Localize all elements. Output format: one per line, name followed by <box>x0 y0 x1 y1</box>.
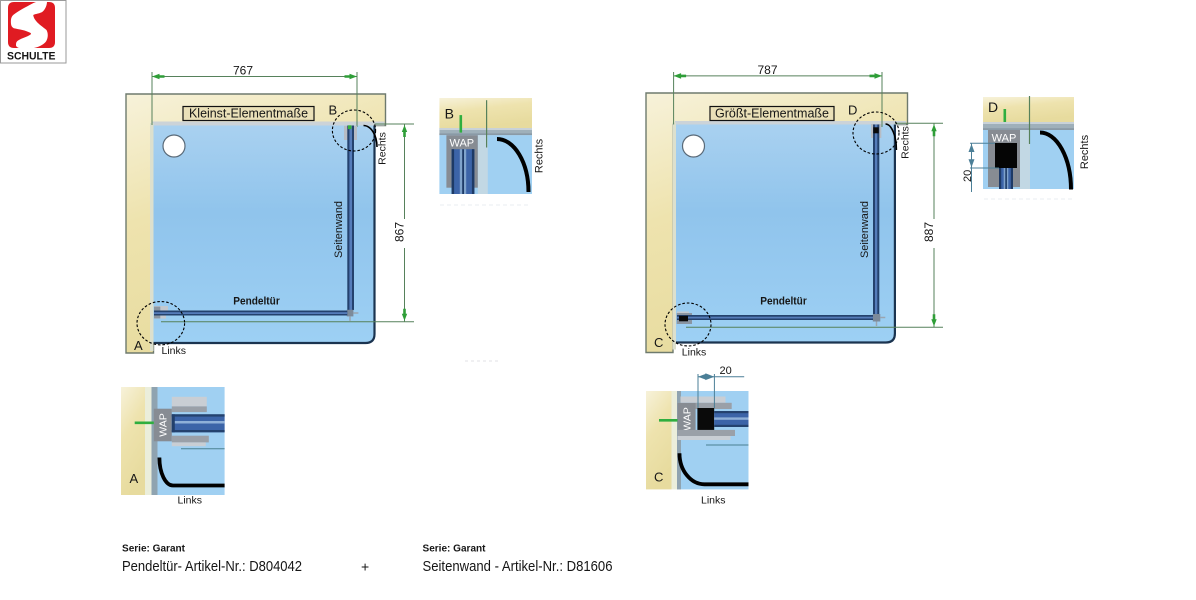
svg-text:Links: Links <box>701 495 726 507</box>
svg-text:Serie: Garant: Serie: Garant <box>122 543 185 555</box>
svg-text:+: + <box>361 559 369 575</box>
svg-text:20: 20 <box>720 365 732 377</box>
svg-text:Rechts: Rechts <box>900 126 912 159</box>
svg-text:A: A <box>134 338 143 353</box>
svg-text:Kleinst-Elementmaße: Kleinst-Elementmaße <box>189 107 308 121</box>
svg-text:867: 867 <box>393 222 407 242</box>
svg-text:B: B <box>329 103 338 118</box>
svg-text:Pendeltür: Pendeltür <box>760 296 807 308</box>
svg-text:Seitenwand - Artikel-Nr.: D81: Seitenwand - Artikel-Nr.: D81606 <box>423 558 613 575</box>
svg-text:767: 767 <box>233 64 253 78</box>
svg-text:Links: Links <box>682 347 707 359</box>
svg-text:Seitenwand: Seitenwand <box>859 201 871 258</box>
svg-text:Serie: Garant: Serie: Garant <box>423 543 486 555</box>
svg-text:Pendeltür: Pendeltür <box>233 296 280 308</box>
svg-text:887: 887 <box>922 222 936 242</box>
svg-text:Rechts: Rechts <box>377 132 389 165</box>
svg-text:C: C <box>654 335 663 350</box>
svg-text:Seitenwand: Seitenwand <box>333 201 345 258</box>
svg-text:C: C <box>654 470 663 485</box>
svg-text:Links: Links <box>162 345 187 357</box>
svg-text:Größt-Elementmaße: Größt-Elementmaße <box>715 107 829 121</box>
svg-text:Links: Links <box>178 495 203 507</box>
svg-text:20: 20 <box>962 170 974 182</box>
svg-text:WAP: WAP <box>682 407 694 431</box>
svg-text:B: B <box>445 106 454 122</box>
svg-text:SCHULTE: SCHULTE <box>7 51 56 63</box>
svg-text:WAP: WAP <box>992 133 1017 145</box>
svg-text:A: A <box>130 471 139 486</box>
svg-text:WAP: WAP <box>158 413 170 437</box>
svg-text:D: D <box>848 103 857 118</box>
svg-text:Pendeltür- Artikel-Nr.: D8040: Pendeltür- Artikel-Nr.: D804042 <box>122 558 302 575</box>
svg-text:Rechts: Rechts <box>534 138 546 173</box>
svg-text:D: D <box>988 99 998 115</box>
svg-text:WAP: WAP <box>449 138 474 150</box>
svg-text:Rechts: Rechts <box>1079 134 1091 169</box>
svg-text:787: 787 <box>757 63 777 77</box>
